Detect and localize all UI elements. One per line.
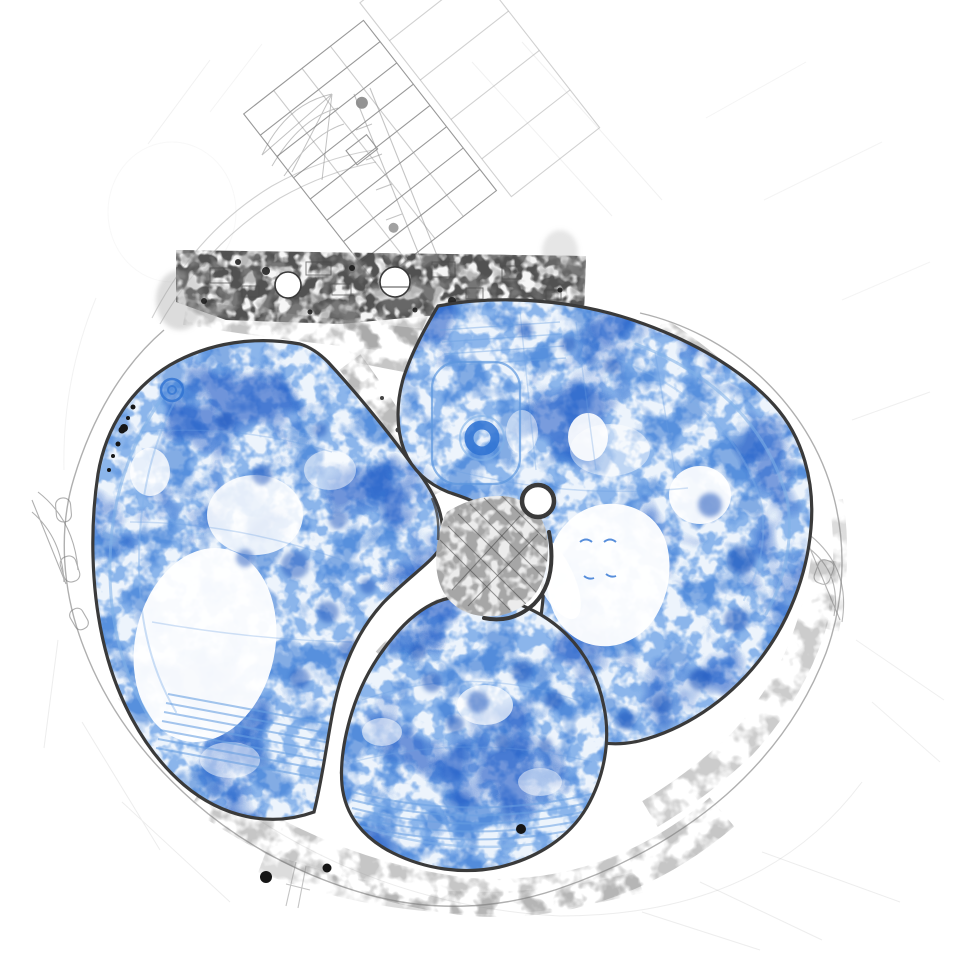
white-clearing bbox=[518, 768, 562, 796]
planting-cluster bbox=[494, 734, 510, 750]
ink-dot bbox=[119, 427, 126, 434]
site-plan-canvas bbox=[0, 0, 960, 955]
ink-dot bbox=[349, 265, 355, 271]
ink-dot bbox=[380, 396, 384, 400]
planting-cluster bbox=[560, 336, 576, 352]
plaza-knob bbox=[522, 485, 554, 517]
ink-dot bbox=[262, 267, 270, 275]
ink-dot bbox=[558, 288, 563, 293]
planting-cluster bbox=[281, 551, 309, 579]
planting-cluster bbox=[317, 601, 339, 623]
planting-cluster bbox=[545, 691, 563, 709]
planting-cluster bbox=[252, 465, 272, 485]
band-circle-building bbox=[275, 272, 301, 298]
site-plan-page bbox=[0, 0, 960, 955]
planting-cluster bbox=[446, 715, 464, 733]
ink-dot bbox=[235, 259, 241, 265]
ink-blob bbox=[260, 871, 272, 883]
planting-cluster bbox=[698, 493, 722, 517]
smudge bbox=[542, 230, 578, 274]
ink-dot bbox=[107, 468, 111, 472]
band-circle-building bbox=[380, 267, 410, 297]
planting-cluster bbox=[652, 694, 672, 714]
ink-dot bbox=[413, 308, 418, 313]
ink-dot bbox=[126, 416, 130, 420]
ink-blob bbox=[516, 824, 526, 834]
planting-cluster bbox=[360, 578, 376, 594]
white-clearing bbox=[669, 466, 731, 524]
planting-cluster bbox=[512, 662, 532, 682]
planting-cluster bbox=[236, 549, 254, 567]
ink-dot bbox=[131, 405, 136, 410]
planting-cluster bbox=[724, 608, 748, 632]
planting-cluster bbox=[467, 691, 489, 713]
smudge bbox=[156, 270, 204, 330]
planting-cluster bbox=[604, 358, 620, 374]
white-clearing bbox=[130, 448, 170, 496]
ink-dot bbox=[308, 310, 313, 315]
planting-cluster bbox=[728, 546, 756, 574]
ink-dot bbox=[201, 298, 207, 304]
ink-dot bbox=[116, 442, 121, 447]
planting-cluster bbox=[410, 644, 426, 660]
planting-cluster bbox=[329, 511, 347, 529]
planting-cluster bbox=[313, 423, 327, 437]
white-clearing bbox=[362, 718, 402, 746]
ink-blob bbox=[323, 864, 332, 873]
white-clearing bbox=[568, 413, 608, 461]
planting-cluster bbox=[617, 711, 635, 729]
planting-cluster bbox=[422, 672, 442, 692]
planting-cluster bbox=[538, 738, 552, 752]
planting-cluster bbox=[290, 668, 310, 688]
planting-cluster bbox=[217, 412, 233, 428]
ink-dot bbox=[111, 454, 115, 458]
white-clearing bbox=[304, 450, 356, 490]
planting-cluster bbox=[689, 669, 711, 691]
planting-cluster bbox=[517, 322, 533, 338]
